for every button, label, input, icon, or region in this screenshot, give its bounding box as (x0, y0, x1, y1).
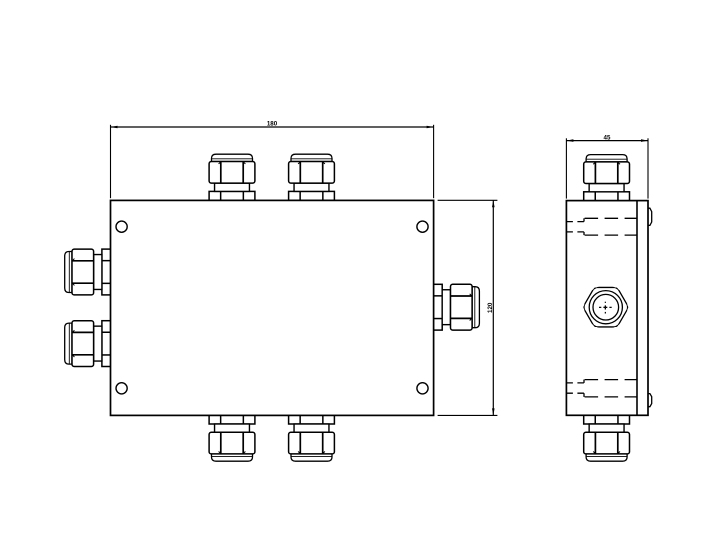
svg-text:45: 45 (604, 134, 611, 141)
svg-text:120: 120 (487, 302, 494, 313)
svg-text:180: 180 (267, 121, 278, 128)
